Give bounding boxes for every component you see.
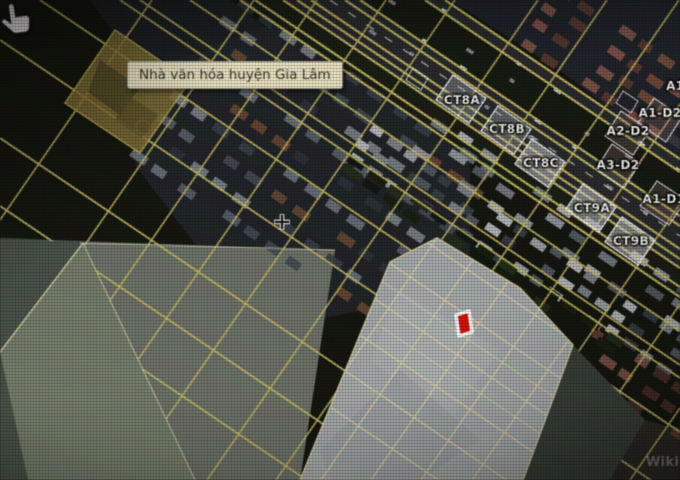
building-label-ct9b[interactable]: CT9B xyxy=(613,234,649,248)
watermark: Wiki xyxy=(646,455,679,470)
building-label-a1-d2[interactable]: A1-D2 xyxy=(639,106,680,120)
map-viewport[interactable]: CT8A CT8B CT8C CT9A CT9B A1-D2 A2-D2 A3-… xyxy=(0,0,680,480)
hand-pointer-icon xyxy=(0,0,36,40)
building-label-ct8a[interactable]: CT8A xyxy=(444,93,480,107)
selected-parcel-marker[interactable] xyxy=(456,311,472,336)
building-label-ct9a[interactable]: CT9A xyxy=(574,201,610,215)
fields-layer xyxy=(0,238,335,480)
map-tooltip: Nhà văn hóa huyện Gia Lâm xyxy=(127,61,343,89)
building-label-a3-d2[interactable]: A3-D2 xyxy=(597,158,640,172)
building-label-ct8b[interactable]: CT8B xyxy=(489,122,525,136)
building-label-a1-clipped[interactable]: A1- xyxy=(666,79,680,93)
building-label-a2-d2[interactable]: A2-D2 xyxy=(607,124,650,138)
photographed-screen-scene: CT8A CT8B CT8C CT9A CT9B A1-D2 A2-D2 A3-… xyxy=(0,0,680,480)
building-label-a1-d1[interactable]: A1-D1 xyxy=(643,192,680,206)
building-label-ct8c[interactable]: CT8C xyxy=(523,156,559,170)
